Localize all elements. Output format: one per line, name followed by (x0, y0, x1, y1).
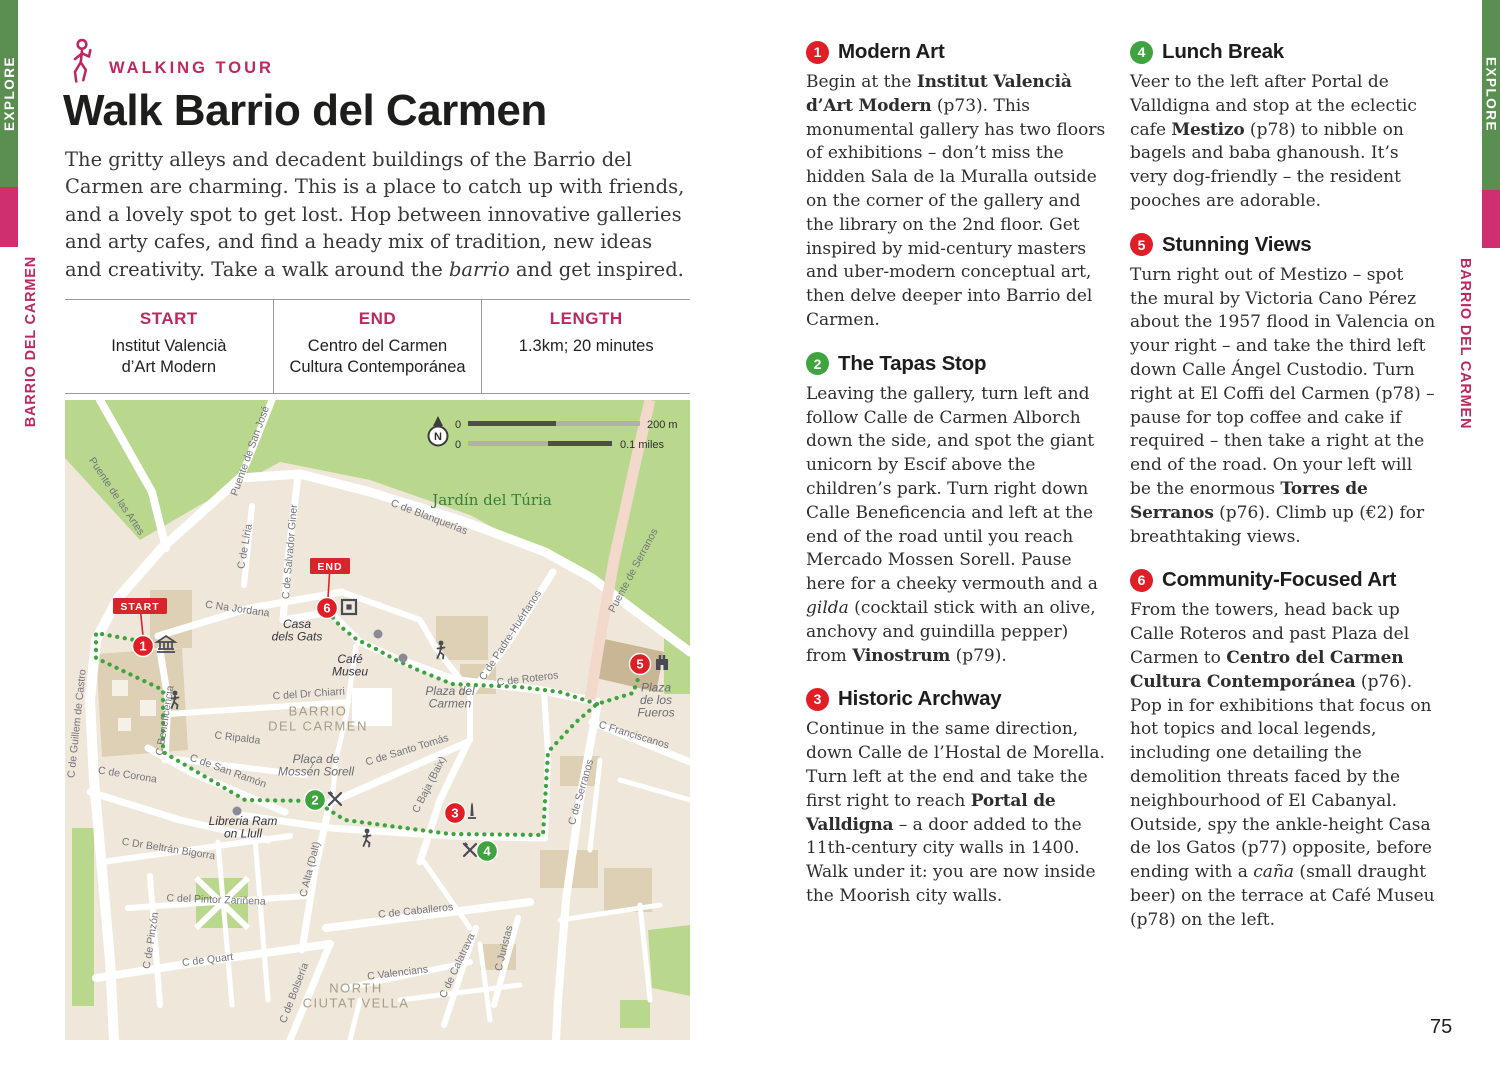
map-label: Jardín del Túria (430, 491, 552, 509)
stop-body: Begin at the Institut Valencià d’Art Mod… (806, 71, 1108, 333)
map-label: Plaza delCarmen (425, 684, 475, 711)
stop-body: Continue in the same direction, down Cal… (806, 718, 1108, 908)
section-label-left: BARRIO DEL CARMEN (23, 256, 39, 427)
stop-number-badge: 5 (1130, 233, 1153, 256)
section-label-right: BARRIO DEL CARMEN (1457, 258, 1473, 429)
svg-text:N: N (434, 431, 442, 443)
map-pin-1: 1 (133, 636, 154, 657)
map-pin-5: 5 (630, 654, 651, 675)
map-poi-dot (399, 654, 408, 663)
svg-text:5: 5 (636, 657, 643, 672)
map-label: Plazade losFueros (637, 681, 674, 720)
stop-title: The Tapas Stop (838, 352, 986, 376)
explore-label-right: EXPLORE (1484, 57, 1499, 132)
page-number-right: 75 (1430, 1016, 1452, 1039)
info-cell-start: START Institut Valenciàd’Art Modern (65, 300, 273, 393)
stop-number-badge: 6 (1130, 569, 1153, 592)
info-header: START (65, 309, 273, 329)
tour-stop-6: 6Community-Focused Art From the towers, … (1130, 568, 1436, 932)
map-svg: Jardín del TúriaPuente de las ArtesPuent… (65, 400, 690, 1040)
map-poi-dot (374, 630, 383, 639)
info-cell-length: LENGTH 1.3km; 20 minutes (481, 300, 690, 393)
section-color-block-left (0, 187, 18, 247)
svg-text:200 m: 200 m (647, 419, 678, 431)
svg-text:2: 2 (311, 793, 318, 808)
info-cell-end: END Centro del CarmenCultura Contemporán… (273, 300, 482, 393)
walking-person-icon (65, 38, 99, 84)
explore-label-left: EXPLORE (2, 56, 17, 131)
stop-title: Modern Art (838, 40, 945, 64)
svg-text:START: START (120, 601, 159, 613)
book-spread: EXPLORE BARRIO DEL CARMEN 74 EXPLORE BAR… (0, 0, 1500, 1082)
explore-tab-right: EXPLORE (1482, 0, 1500, 190)
stop-title: Community-Focused Art (1162, 568, 1396, 592)
tour-column-2: 4Lunch Break Veer to the left after Port… (1130, 40, 1436, 952)
tour-info-table: START Institut Valenciàd’Art Modern END … (65, 299, 690, 394)
svg-text:0.1 miles: 0.1 miles (620, 439, 665, 451)
page-title: Walk Barrio del Carmen (63, 86, 547, 136)
map-pin-6: 6 (317, 598, 338, 619)
stop-number-badge: 2 (806, 352, 829, 375)
stop-number-badge: 1 (806, 41, 829, 64)
svg-text:1: 1 (139, 639, 146, 654)
stop-body: Veer to the left after Portal de Valldig… (1130, 71, 1436, 214)
info-header: END (274, 309, 482, 329)
tour-stop-2: 2The Tapas Stop Leaving the gallery, tur… (806, 352, 1108, 669)
svg-text:0: 0 (455, 419, 461, 431)
stop-title: Stunning Views (1162, 233, 1311, 257)
tour-column-1: 1Modern Art Begin at the Institut Valenc… (806, 40, 1108, 928)
svg-text:3: 3 (451, 806, 458, 821)
stop-body: Leaving the gallery, turn left and follo… (806, 383, 1108, 669)
walking-tour-header: WALKING TOUR (65, 38, 274, 84)
tour-stop-1: 1Modern Art Begin at the Institut Valenc… (806, 40, 1108, 333)
stop-body: From the towers, head back up Calle Rote… (1130, 599, 1436, 932)
info-header: LENGTH (482, 309, 690, 329)
eyebrow-label: WALKING TOUR (109, 45, 274, 78)
tour-stop-3: 3Historic Archway Continue in the same d… (806, 687, 1108, 908)
svg-text:END: END (317, 561, 342, 573)
walking-tour-map: Jardín del TúriaPuente de las ArtesPuent… (65, 400, 690, 1040)
tour-stop-4: 4Lunch Break Veer to the left after Port… (1130, 40, 1436, 214)
svg-text:0: 0 (455, 439, 461, 451)
stop-body: Turn right out of Mestizo – spot the mur… (1130, 264, 1436, 550)
section-color-block-right (1482, 190, 1500, 248)
stop-number-badge: 4 (1130, 41, 1153, 64)
stop-number-badge: 3 (806, 688, 829, 711)
stop-title: Historic Archway (838, 687, 1002, 711)
intro-paragraph: The gritty alleys and decadent buildings… (65, 146, 693, 283)
stop-title: Lunch Break (1162, 40, 1284, 64)
map-pin-3: 3 (445, 803, 466, 824)
map-pin-4: 4 (477, 841, 498, 862)
map-pin-2: 2 (305, 790, 326, 811)
svg-text:4: 4 (483, 844, 491, 859)
explore-tab-left: EXPLORE (0, 0, 18, 187)
tour-stop-5: 5Stunning Views Turn right out of Mestiz… (1130, 233, 1436, 550)
svg-text:6: 6 (323, 601, 330, 616)
